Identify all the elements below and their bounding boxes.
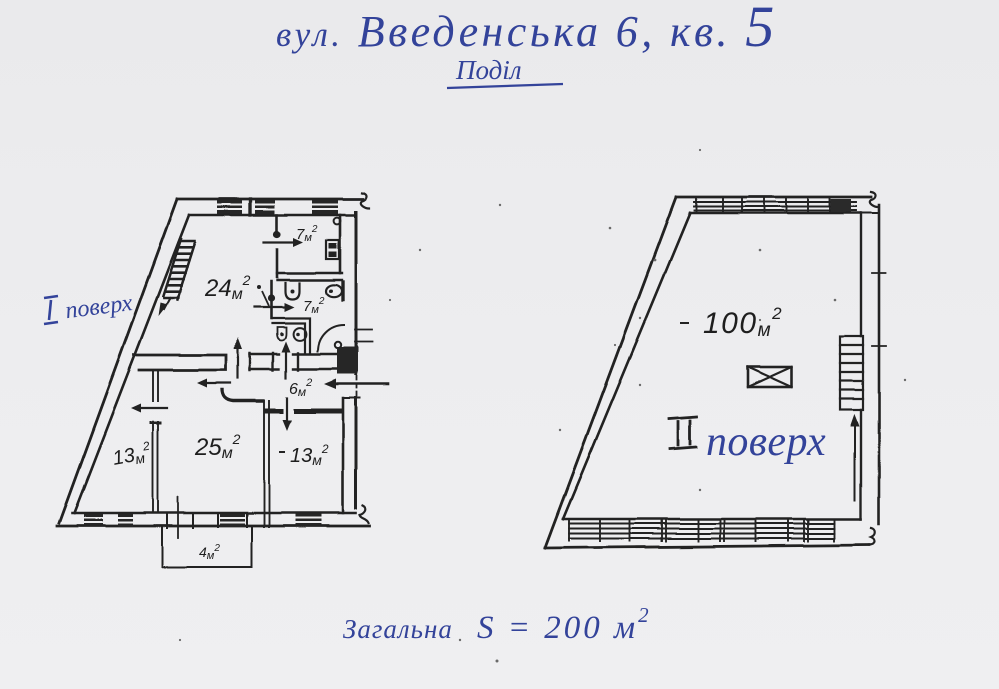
svg-text:вул. Введенська 6, кв. 5: вул. Введенська 6, кв. 5 [276, 0, 778, 59]
svg-text:Поділ: Поділ [455, 55, 522, 85]
svg-text:Загальна: Загальна [343, 614, 453, 644]
svg-text:поверх: поверх [706, 419, 826, 465]
svg-text:S = 200 м2: S = 200 м2 [477, 603, 652, 646]
